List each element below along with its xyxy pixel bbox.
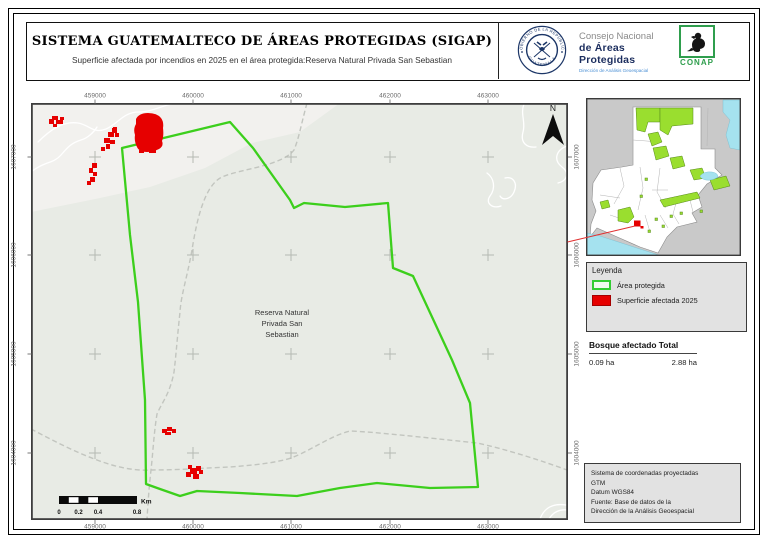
summary-block: Bosque afectado Total 0.09 ha 2.88 ha [589, 340, 697, 367]
axis-tick-label: 1605000 [11, 341, 18, 366]
credit-line: GTM [591, 479, 734, 489]
header-divider [498, 22, 499, 79]
map-sheet: SISTEMA GUATEMALTECO DE ÁREAS PROTEGIDAS… [0, 0, 768, 543]
legend-swatch-protected [592, 280, 611, 290]
government-seal-icon: GOBIERNO DE LA REPÚBLICA GUATEMALA [517, 25, 567, 75]
conap-label: CONAP [676, 58, 718, 67]
axis-tick-label: 1606000 [11, 242, 18, 267]
scale-label: 0.4 [94, 510, 103, 516]
legend-swatch-fire [592, 295, 611, 306]
credit-line: Dirección de la Análisis Geoespacial [591, 507, 734, 517]
axis-tick-label: 459000 [84, 93, 106, 100]
title-area: SISTEMA GUATEMALTECO DE ÁREAS PROTEGIDAS… [26, 22, 498, 79]
legend-item: Superficie afectada 2025 [592, 295, 741, 306]
axis-tick-label: 462000 [379, 93, 401, 100]
axis-tick-label: 459000 [84, 524, 106, 531]
axis-tick-label: 1606000 [574, 242, 581, 267]
protected-area-label: Reserva Natural Privada San Sebastian [247, 308, 317, 341]
axis-tick-label: 460000 [182, 93, 204, 100]
summary-value-left: 0.09 ha [589, 358, 614, 367]
legend-title: Leyenda [592, 266, 741, 275]
summary-values: 0.09 ha 2.88 ha [589, 358, 697, 367]
conap-logo-icon [679, 25, 715, 58]
axis-tick-label: 461000 [280, 93, 302, 100]
scale-label: 0.8 [133, 510, 142, 516]
scale-label: 0.2 [74, 510, 83, 516]
credit-line: Datum WGS84 [591, 488, 734, 498]
axis-tick-label: 463000 [477, 524, 499, 531]
org-name-line2: de Áreas Protegidas [579, 42, 679, 66]
axis-tick-label: 463000 [477, 93, 499, 100]
axis-tick-label: 460000 [182, 524, 204, 531]
legend-label: Superficie afectada 2025 [617, 296, 698, 305]
credit-line: Fuente: Base de datos de la [591, 498, 734, 508]
legend: Leyenda Área protegidaSuperficie afectad… [586, 262, 747, 332]
legend-item: Área protegida [592, 280, 741, 290]
axis-tick-label: 1605000 [574, 341, 581, 366]
legend-label: Área protegida [617, 281, 665, 290]
summary-value-right: 2.88 ha [672, 358, 697, 367]
credits-box: Sistema de coordenadas proyectadasGTMDat… [584, 463, 741, 523]
org-title-block: Consejo Nacional de Áreas Protegidas Dir… [579, 31, 679, 73]
page-title: SISTEMA GUATEMALTECO DE ÁREAS PROTEGIDAS… [32, 34, 492, 49]
legend-items: Área protegidaSuperficie afectada 2025 [592, 280, 741, 306]
axis-tick-label: 1604000 [11, 440, 18, 465]
axis-tick-label: 1604000 [574, 440, 581, 465]
axis-tick-label: 1607000 [574, 144, 581, 169]
org-department: Dirección de Análisis Geoespacial [579, 68, 679, 73]
credit-line: Sistema de coordenadas proyectadas [591, 469, 734, 479]
page-subtitle: Superficie afectada por incendios en 202… [72, 55, 452, 66]
org-name-line1: Consejo Nacional [579, 31, 679, 42]
scale-unit: Km [141, 499, 152, 506]
inset-overview-map [586, 98, 741, 256]
axis-tick-label: 461000 [280, 524, 302, 531]
axis-tick-label: 1607000 [11, 144, 18, 169]
axis-tick-label: 462000 [379, 524, 401, 531]
summary-title: Bosque afectado Total [589, 340, 697, 354]
